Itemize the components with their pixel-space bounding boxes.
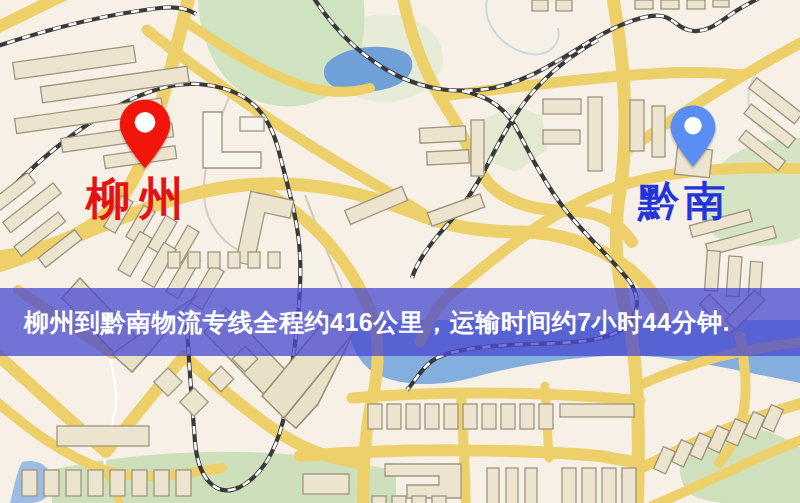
route-info-text: 柳州到黔南物流专线全程约416公里，运输时间约7小时44分钟. [0,306,730,339]
destination-pin-icon[interactable] [668,104,718,168]
map-canvas [0,0,800,503]
destination-city-label: 黔南 [638,181,730,222]
origin-city-label: 柳州 [86,176,192,221]
route-info-banner: 柳州到黔南物流专线全程约416公里，运输时间约7小时44分钟. [0,288,800,356]
map-screenshot: 柳州 黔南 柳州到黔南物流专线全程约416公里，运输时间约7小时44分钟. [0,0,800,503]
origin-pin-icon[interactable] [118,98,172,170]
